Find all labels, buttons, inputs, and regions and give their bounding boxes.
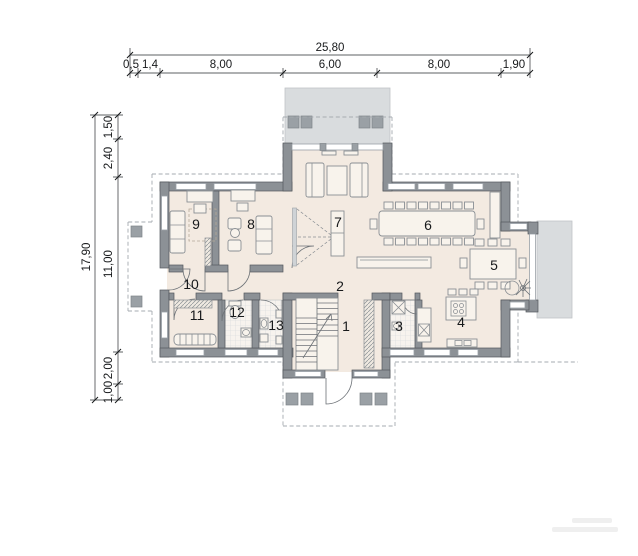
window (162, 196, 168, 230)
projection-screen (293, 208, 297, 266)
dimension-chain-left: 17,90 1,50 2,40 11,00 2,00 1,00 (81, 112, 123, 403)
dim-left-seg0: 1,50 (103, 116, 115, 138)
dim-top-seg3: 6,00 (319, 59, 341, 71)
dim-top-seg0: 0,5 (123, 59, 139, 71)
tall-cabinet (490, 192, 500, 238)
window (354, 372, 378, 377)
window (530, 234, 536, 300)
sofa (306, 163, 324, 197)
chair (237, 203, 248, 211)
dim-left-total: 17,90 (81, 243, 93, 272)
room-label-8: 8 (247, 216, 255, 232)
window-glazed-wall (292, 144, 383, 150)
sofa (170, 211, 185, 253)
dim-top-seg2: 8,00 (210, 59, 232, 71)
dim-left-seg4: 1,00 (103, 381, 115, 403)
dim-top-seg5: 1,90 (503, 59, 525, 71)
staircase (296, 298, 338, 370)
console (344, 151, 358, 155)
radiator (205, 238, 211, 266)
window (424, 350, 450, 356)
bar-stool (459, 289, 467, 295)
window (258, 350, 278, 356)
room-label-4: 4 (457, 314, 465, 330)
porch-entrance (286, 393, 387, 405)
window (453, 184, 483, 190)
sideboard (357, 257, 431, 268)
dim-left-seg3: 2,00 (103, 357, 115, 379)
desk (187, 191, 213, 202)
window (176, 350, 204, 356)
room-label-9: 9 (192, 216, 200, 232)
fixture (276, 336, 282, 344)
desk (231, 190, 255, 201)
side-canopy-left (131, 226, 142, 307)
window (225, 350, 247, 356)
window (176, 184, 206, 190)
room-label-6: 6 (424, 217, 432, 233)
dim-top-total: 25,80 (316, 42, 345, 54)
bar-stool (448, 289, 456, 295)
porch-pillar (301, 393, 313, 405)
room-label-13: 13 (268, 317, 284, 333)
terrace-pillar (359, 116, 370, 128)
terrace-pillar (372, 116, 383, 128)
window (295, 372, 321, 377)
dim-left-seg1: 2,40 (103, 147, 115, 169)
dim-top-seg1: 1,4 (142, 59, 159, 71)
canopy-pillar (131, 226, 142, 237)
window (510, 224, 527, 230)
porch-pillar (286, 393, 298, 405)
porch-pillar (375, 393, 387, 405)
sofa (256, 216, 272, 254)
window (162, 312, 168, 338)
window (390, 350, 414, 356)
floor-plan-page: 1 2 3 4 5 6 7 8 9 10 11 12 13 25,80 0,5 … (0, 0, 638, 556)
dim-left-seg2: 11,00 (103, 250, 115, 278)
armchair (228, 240, 241, 251)
porch-pillar (360, 393, 372, 405)
sofa (350, 163, 368, 197)
fixture (260, 334, 268, 342)
window (458, 350, 478, 356)
room-label-12: 12 (229, 304, 245, 320)
chair (194, 204, 206, 213)
room-label-1: 1 (342, 318, 350, 334)
dimension-chain-top: 25,80 0,5 1,4 8,00 6,00 8,00 1,90 (123, 42, 533, 78)
armchair (228, 218, 241, 229)
room-label-10: 10 (183, 276, 199, 292)
floor-plan-drawing: 1 2 3 4 5 6 7 8 9 10 11 12 13 25,80 0,5 … (0, 0, 638, 556)
window (388, 184, 415, 190)
window (418, 184, 445, 190)
console (322, 151, 336, 155)
entrance-door (326, 378, 352, 404)
terrace-right (537, 221, 572, 318)
bar-stool (470, 289, 478, 295)
side-table (231, 229, 240, 238)
room-label-5: 5 (490, 257, 498, 273)
room-label-11: 11 (190, 307, 205, 323)
room-label-2: 2 (336, 278, 344, 294)
window (510, 302, 525, 308)
window (214, 184, 256, 190)
terrace-pillar (288, 116, 299, 128)
dim-top-seg4: 8,00 (428, 59, 450, 71)
room-label-3: 3 (395, 318, 403, 334)
canopy-pillar (131, 296, 142, 307)
room-label-7: 7 (334, 214, 342, 230)
coffee-table (327, 166, 347, 195)
hall-closet (364, 300, 374, 368)
watermark (552, 518, 618, 532)
terrace-pillar (301, 116, 312, 128)
